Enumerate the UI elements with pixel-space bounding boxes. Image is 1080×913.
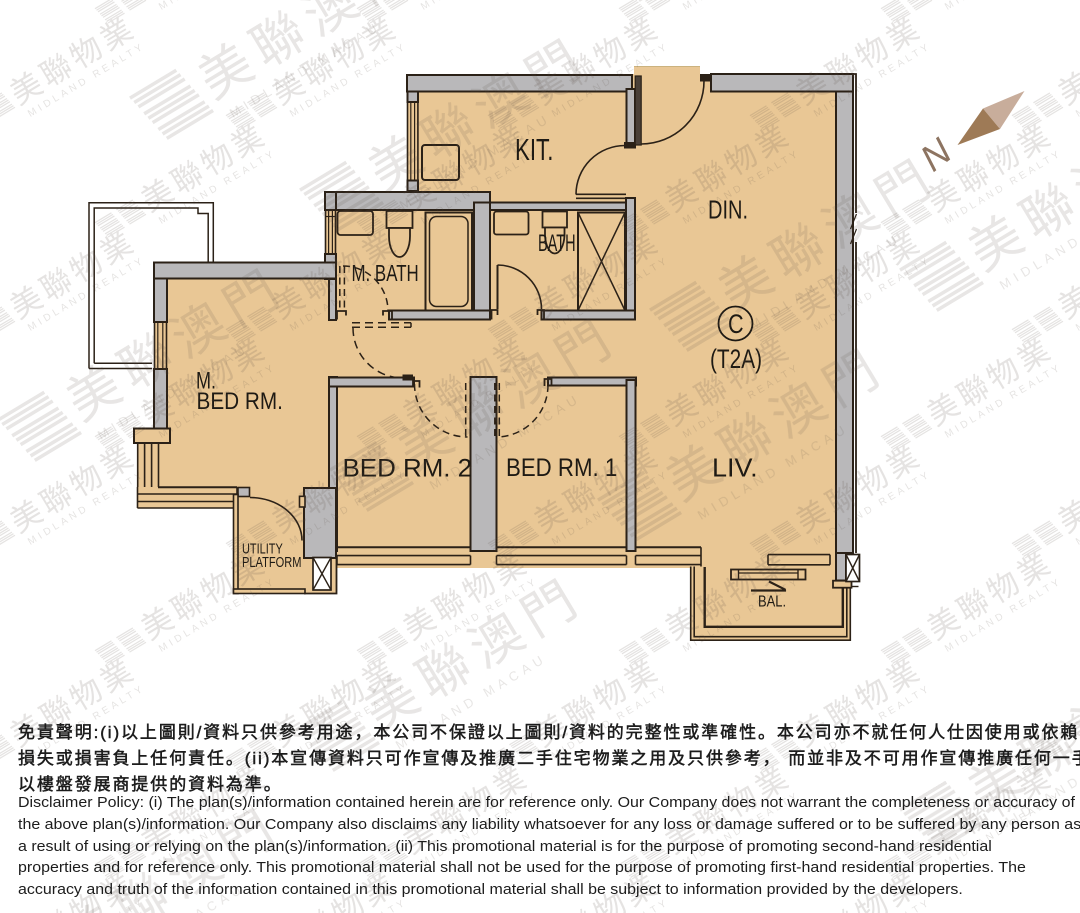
svg-text:BATH: BATH <box>538 229 576 257</box>
